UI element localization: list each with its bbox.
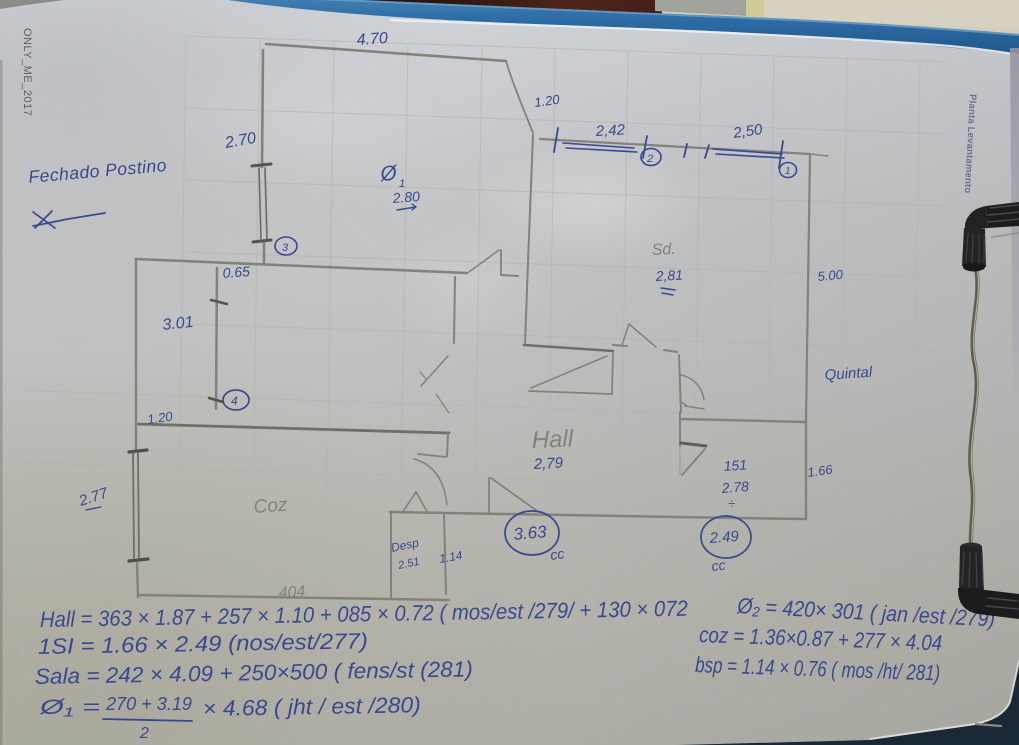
svg-text:4.70: 4.70	[356, 30, 388, 49]
svg-text:Quintal: Quintal	[824, 364, 873, 384]
svg-text:1: 1	[785, 166, 791, 177]
svg-text:2: 2	[646, 153, 653, 165]
svg-text:5.00: 5.00	[817, 267, 844, 284]
svg-text:3: 3	[282, 242, 289, 254]
svg-text:4: 4	[231, 394, 238, 408]
svg-text:Ø₁ =: Ø₁ =	[39, 696, 100, 719]
svg-text:cc: cc	[549, 545, 565, 563]
svg-text:3.01: 3.01	[162, 314, 195, 334]
svg-text:Sd.: Sd.	[651, 241, 676, 259]
svg-text:270 + 3.19: 270 + 3.19	[105, 694, 192, 714]
svg-text:2.80: 2.80	[391, 188, 421, 206]
svg-text:cc: cc	[711, 557, 727, 574]
svg-text:2.78: 2.78	[720, 478, 750, 496]
svg-text:2: 2	[139, 725, 149, 742]
svg-text:0.65: 0.65	[222, 263, 251, 281]
svg-text:ONLY_ME_2017: ONLY_ME_2017	[21, 28, 33, 116]
svg-text:2.49: 2.49	[708, 528, 740, 547]
svg-text:151: 151	[723, 456, 747, 474]
svg-text:2,81: 2,81	[654, 267, 683, 284]
svg-text:2,42: 2,42	[594, 121, 626, 140]
svg-text:× 4.68 ( jht / est /280): × 4.68 ( jht / est /280)	[203, 692, 421, 721]
svg-text:404: 404	[278, 583, 306, 602]
svg-text:÷: ÷	[728, 496, 735, 511]
svg-text:2,79: 2,79	[532, 454, 564, 473]
svg-text:3.63: 3.63	[513, 522, 548, 544]
svg-text:Coz: Coz	[253, 495, 289, 518]
svg-text:Hall: Hall	[531, 426, 574, 454]
